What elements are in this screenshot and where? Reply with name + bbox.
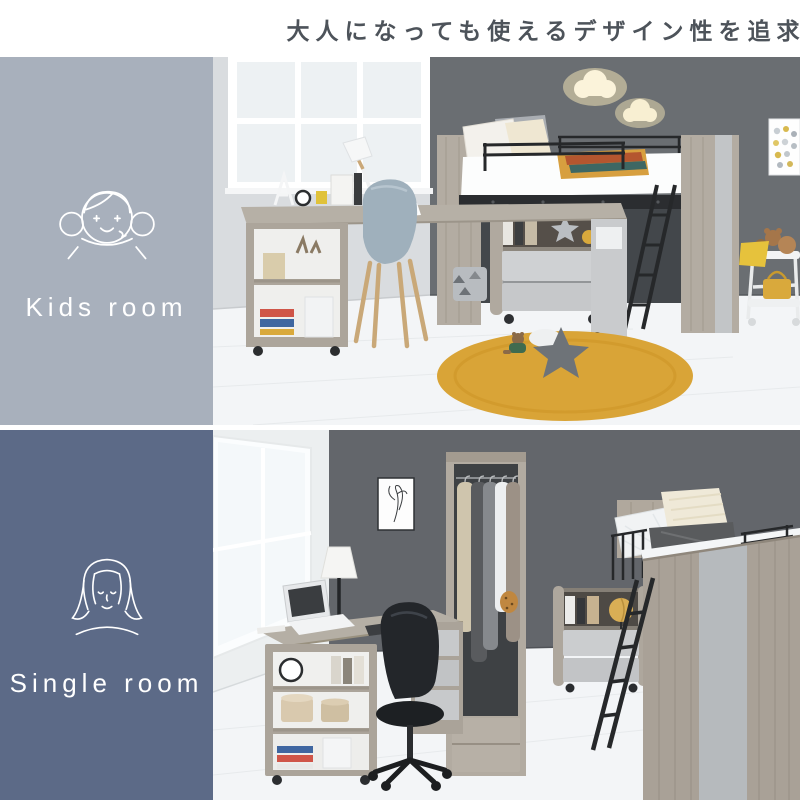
desk-shelf-unit [265,644,377,785]
desk-shelf-unit [246,223,348,356]
basket [263,253,285,279]
kids-room-photo [213,57,800,425]
single-room-scene [213,430,800,800]
product-feature-page: 大人になっても使えるデザイン性を追求 Kids room [0,0,800,800]
alarm-clock [280,659,302,681]
kids-room-scene [213,57,800,425]
kids-room-sidebar: Kids room [0,57,213,425]
single-room-photo [213,430,800,800]
window [225,57,433,194]
line-art-poster [378,478,414,530]
storage-box [305,297,333,337]
page-header: 大人になっても使えるデザイン性を追求 [0,0,800,57]
woman-face-icon [61,550,153,642]
toy-basket [453,267,487,301]
storage-box [323,738,351,768]
alarm-clock [296,191,310,205]
single-room-sidebar: Single room [0,430,213,800]
single-room-panel: Single room [0,430,800,800]
kids-room-panel: Kids room [0,57,800,425]
page-title: 大人になっても使えるデザイン性を追求 [287,12,800,46]
single-room-label: Single room [10,668,204,699]
pencil-cup [316,191,327,204]
yellow-blanket [739,241,769,267]
kids-room-label: Kids room [25,292,187,323]
girl-face-icon [57,178,157,266]
bedside-storage-cart [553,586,649,693]
leopard-bag [500,591,518,613]
panel-gray-stripe [715,135,732,333]
under-bed-storage-cart [490,205,608,324]
dot-poster [769,119,800,175]
panel-gray-stripe [699,544,747,800]
